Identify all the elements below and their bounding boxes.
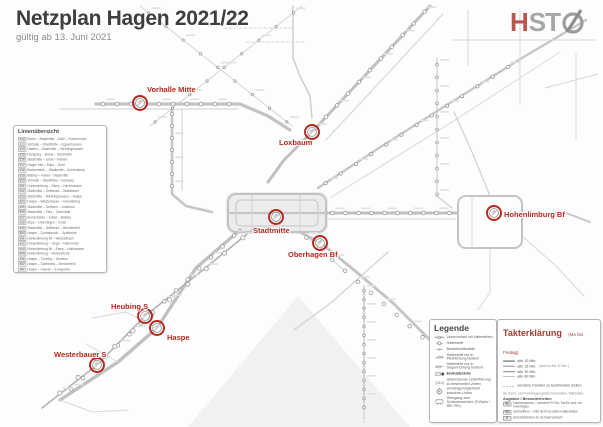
line-number-badge: 544 bbox=[18, 251, 26, 256]
line-number-badge: 84 bbox=[18, 267, 26, 272]
legend-item-label: Haltestelle nur in Gegenrichtung bedient bbox=[447, 362, 494, 370]
line-overview-row: 525Stadtmitte – Delstern – Ambrock bbox=[18, 204, 103, 209]
line-overview-row: 84Haspe – Voerde – Ennepetal bbox=[18, 267, 103, 272]
frequency-bar bbox=[503, 360, 515, 362]
line-overview-box: Linienübersicht 510Boele – Stadtmitte – … bbox=[13, 125, 107, 273]
legend-item: Umsteigemöglichkeit zwischen Linien bbox=[434, 387, 494, 395]
legend-item-label: Übergang zum Schienenverkehr (S-Bahn / R… bbox=[447, 397, 494, 409]
highlight-label: Hohenlimburg Bf bbox=[504, 210, 565, 219]
special-row: SBSchnellbus – hält nicht an allen Halte… bbox=[503, 410, 597, 415]
line-overview-title: Linienübersicht bbox=[18, 129, 103, 135]
frequency-row: alle 30 Min. bbox=[503, 370, 597, 374]
line-overview-row: 530Stadtmitte – Selbecke – Breckerfeld bbox=[18, 225, 103, 230]
line-overview-row: 519Bathey – Kabel – Stadtmitte bbox=[18, 173, 103, 178]
legend-item: Haltestelle nur in Pfeilrichtung bedient bbox=[434, 353, 494, 361]
legend-item-label: Haltestelle nur in Pfeilrichtung bedient bbox=[447, 353, 494, 361]
page-title: Netzplan Hagen 2021/22 bbox=[16, 7, 249, 31]
frequency-label: einzelne Fahrten zu bestimmten Zeiten bbox=[517, 383, 581, 387]
special-text: Nachtexpress – verkehrt Fr/Sa, Sa/So und… bbox=[513, 402, 596, 409]
specials-title: Angaben / Besonderheiten bbox=[503, 397, 597, 401]
highlight-heubing-s[interactable]: Heubing S bbox=[111, 302, 152, 323]
alt-icon: (510) bbox=[434, 380, 445, 385]
line-number-badge: 523 bbox=[18, 194, 26, 199]
line-number-badge: 521 bbox=[18, 184, 26, 189]
request-icon bbox=[434, 347, 445, 352]
line-number-badge: 519 bbox=[18, 173, 26, 178]
line-number-badge: 530 bbox=[18, 225, 26, 230]
line-icon bbox=[434, 335, 445, 340]
frequency-line-icon bbox=[503, 377, 515, 378]
line-number-badge: 527 bbox=[18, 215, 26, 220]
legend-item-label: Linienverlauf mit Haltestellen bbox=[447, 335, 493, 339]
line-number-badge: 525 bbox=[18, 204, 26, 209]
line-overview-row: 515Hengstey – Boele – Stadtmitte bbox=[18, 152, 103, 157]
line-overview-row: 543Hohenlimburg Bf – Elsey – Holthausen bbox=[18, 246, 103, 251]
line-overview-row: 528Eilpe – Oberhagen – Emst bbox=[18, 220, 103, 225]
frequency-row: alle 15 Min.(abends alle 30 Min.) bbox=[503, 364, 597, 368]
special-text: Einsatzfahrten im Schülerverkehr bbox=[513, 416, 562, 421]
line-route-label: Hohenlimburg – Elsey – Henkhausen bbox=[27, 184, 81, 187]
line-overview-row: 522Stadtmitte – Selbecke – Waldbauer bbox=[18, 189, 103, 194]
frequency-line-icon bbox=[503, 366, 515, 367]
special-row: NENachtexpress – verkehrt Fr/Sa, Sa/So u… bbox=[503, 402, 597, 409]
highlight-label: Heubing S bbox=[111, 302, 148, 311]
line-route-label: Hohenlimburg – Hünenpforte bbox=[27, 252, 69, 255]
line-overview-row: 534Haspe – Quambusch – Spielbrink bbox=[18, 231, 103, 236]
line-number-badge: 526 bbox=[18, 210, 26, 215]
line-number-badge: 547 bbox=[18, 262, 26, 267]
special-text: Schnellbus – hält nicht an allen Haltest… bbox=[513, 410, 578, 415]
line-route-label: Eilpe – Oberhagen – Emst bbox=[27, 221, 66, 224]
line-number-badge: 517 bbox=[18, 163, 26, 168]
line-overview-row: 510Boele – Stadtmitte – Dahl – Rummenohl bbox=[18, 137, 103, 142]
line-overview-row: 512Vorhalle – Stadtmitte – Eppenhausen bbox=[18, 142, 103, 147]
line-overview-row: 517Hagen Hbf – Eilpe – Dahl bbox=[18, 163, 103, 168]
highlight-hohenlimburg-bf[interactable]: Hohenlimburg Bf bbox=[487, 206, 565, 220]
line-overview-row: 547Haspe – Spielbrink – Breckerfeld bbox=[18, 262, 103, 267]
special-text: Anruf-Sammel-Taxi – Anmeldung 30 Min. vo… bbox=[513, 422, 591, 423]
line-overview-row: 524Haspe – Westerbauer – Gevelsberg bbox=[18, 199, 103, 204]
highlight-label: Stadtmitte bbox=[253, 226, 290, 235]
line-number-badge: 515 bbox=[18, 152, 26, 157]
line-route-label: Stadtmitte – Selbecke – Breckerfeld bbox=[27, 226, 79, 229]
line-route-label: Hagen Hbf – Eilpe – Dahl bbox=[27, 163, 64, 166]
line-number-badge: 516 bbox=[18, 157, 26, 162]
line-route-label: Hohenlimburg Bf – Elsey – Holthausen bbox=[27, 247, 84, 250]
svg-text:(510): (510) bbox=[435, 380, 445, 385]
line-number-badge: SB72 bbox=[18, 272, 27, 273]
special-badge: SB bbox=[503, 410, 511, 415]
line-route-label: Hohenlimburg – Oege – Nahmertal bbox=[27, 242, 78, 245]
terminus-icon bbox=[434, 372, 445, 377]
line-route-label: Haspe – Spielbrink – Breckerfeld bbox=[27, 263, 75, 266]
hst-logo-st: ST bbox=[529, 9, 560, 35]
legend-list: Linienverlauf mit HaltestellenHaltestell… bbox=[434, 335, 494, 408]
stop-icon bbox=[434, 341, 445, 346]
frequency-line-icon bbox=[503, 371, 515, 372]
legend-item-label: Haltestelle bbox=[447, 342, 464, 346]
line-route-label: Vorhalle – Stadtmitte – Eppenhausen bbox=[27, 142, 81, 145]
line-route-label: Hohenlimburg Bf – Wesselbach bbox=[27, 236, 73, 239]
special-row: ASTAnruf-Sammel-Taxi – Anmeldung 30 Min.… bbox=[503, 422, 597, 423]
frequency-bar bbox=[503, 377, 515, 378]
highlight-haspe[interactable]: Haspe bbox=[150, 321, 190, 342]
highlight-label: Oberhagen Bf bbox=[288, 250, 338, 259]
frequency-row: alle 10 Min. bbox=[503, 359, 597, 363]
highlight-label: Vorhalle Mitte bbox=[147, 85, 196, 94]
legend-item-label: Umsteigemöglichkeit zwischen Linien bbox=[447, 387, 494, 395]
legend-item-label: abweichende Linienführung zu bestimmten … bbox=[447, 378, 494, 386]
line-route-label: Hengstey – Boele – Stadtmitte bbox=[27, 153, 72, 156]
line-number-badge: 546 bbox=[18, 257, 26, 262]
special-badge: NE bbox=[503, 402, 511, 407]
rail-icon bbox=[434, 399, 445, 405]
line-overview-row: 516Stadtmitte – Emst – Halden bbox=[18, 157, 103, 162]
line-overview-row: 521Hohenlimburg – Elsey – Henkhausen bbox=[18, 184, 103, 189]
line-route-label: Stadtmitte – Fley – Garenfeld bbox=[27, 210, 70, 213]
line-overview-list: 510Boele – Stadtmitte – Dahl – Rummenohl… bbox=[18, 137, 103, 274]
legend-item: Haltestelle bbox=[434, 341, 494, 346]
legend-item: (510)abweichende Linienführung zu bestim… bbox=[434, 378, 494, 386]
frequency-label: alle 15 Min. bbox=[517, 364, 536, 368]
highlight-westerbauer-s[interactable]: Westerbauer S bbox=[54, 350, 106, 372]
line-route-label: Boelerheide – Kabel – Bathey bbox=[27, 216, 71, 219]
highlight-oberhagen-bf[interactable]: Oberhagen Bf bbox=[288, 236, 338, 259]
frequency-label: alle 60 Min. bbox=[517, 375, 536, 379]
line-overview-row: 518Boelerheide – Stadtmitte – Kuhlerkamp bbox=[18, 168, 103, 173]
line-number-badge: 542 bbox=[18, 241, 26, 246]
line-number-badge: 534 bbox=[18, 231, 26, 236]
line-overview-row: 542Hohenlimburg – Oege – Nahmertal bbox=[18, 241, 103, 246]
line-number-badge: 512 bbox=[18, 142, 26, 147]
hst-circle-icon bbox=[560, 8, 587, 36]
special-badge: AST bbox=[503, 422, 512, 423]
line-number-badge: 524 bbox=[18, 199, 26, 204]
frequency-label: alle 10 Min. bbox=[517, 359, 536, 363]
frequency-general-note: An Sonn- und Feiertagen gelten besondere… bbox=[503, 392, 597, 396]
frequency-legend-title: Takterklärung bbox=[503, 328, 562, 338]
frequency-note: (abends alle 30 Min.) bbox=[539, 365, 569, 369]
frequency-row: einzelne Fahrten zu bestimmten Zeiten bbox=[503, 380, 597, 391]
line-overview-row: SB72Hagen – Herdecke – Dortmund bbox=[18, 272, 103, 273]
map-header: Netzplan Hagen 2021/22 gültig ab 13. Jun… bbox=[16, 7, 249, 43]
legend-item-label: Bedarfshaltestelle bbox=[447, 348, 476, 352]
line-route-label: Stadtmitte – Selbecke – Waldbauer bbox=[27, 189, 79, 192]
line-overview-row: 541Hohenlimburg Bf – Wesselbach bbox=[18, 236, 103, 241]
special-badge: E bbox=[503, 416, 511, 421]
dir-a-icon bbox=[434, 355, 445, 360]
line-overview-row: 527Boelerheide – Kabel – Bathey bbox=[18, 215, 103, 220]
line-overview-row: 544Hohenlimburg – Hünenpforte bbox=[18, 251, 103, 256]
line-number-badge: 522 bbox=[18, 189, 26, 194]
line-overview-row: 520Vorhalle – Stadtmitte – Eckesey bbox=[18, 178, 103, 183]
line-number-badge: 543 bbox=[18, 246, 26, 251]
line-route-label: Stadtmitte – Emst – Halden bbox=[27, 158, 67, 161]
line-route-label: Bathey – Kabel – Stadtmitte bbox=[27, 174, 68, 177]
dir-b-icon bbox=[434, 364, 445, 369]
line-route-label: Boele – Stadtmitte – Dahl – Rummenohl bbox=[27, 137, 86, 140]
frequency-legend-box: Takterklärung (Mo bis Freitag) alle 10 M… bbox=[497, 319, 601, 423]
frequency-line-icon bbox=[503, 360, 515, 362]
line-overview-row: 546Haspe – Tücking – Geweke bbox=[18, 257, 103, 262]
highlight-label: Loxbaum bbox=[279, 138, 313, 147]
hst-logo-h: H bbox=[510, 9, 529, 35]
line-number-badge: 518 bbox=[18, 168, 26, 173]
line-number-badge: 510 bbox=[18, 137, 26, 142]
line-route-label: Stadtmitte – Wehringhausen – Haspe bbox=[27, 195, 82, 198]
interchange-icon bbox=[434, 388, 445, 395]
frequency-legend-body: alle 10 Min.alle 15 Min.(abends alle 30 … bbox=[503, 359, 597, 423]
line-overview-row: 514Halden – Stadtmitte – Wehringhausen bbox=[18, 147, 103, 152]
legend-item: Endhaltestelle bbox=[434, 372, 494, 377]
line-number-badge: 541 bbox=[18, 236, 26, 241]
line-number-badge: 514 bbox=[18, 147, 26, 152]
special-row: EEinsatzfahrten im Schülerverkehr bbox=[503, 416, 597, 421]
legend-title: Legende bbox=[434, 323, 494, 333]
line-number-badge: 528 bbox=[18, 220, 26, 225]
line-route-label: Vorhalle – Stadtmitte – Eckesey bbox=[27, 179, 74, 182]
legend-box: Legende Linienverlauf mit HaltestellenHa… bbox=[429, 319, 497, 423]
line-overview-row: 523Stadtmitte – Wehringhausen – Haspe bbox=[18, 194, 103, 199]
legend-item-label: Endhaltestelle bbox=[447, 372, 471, 376]
legend-item: Linienverlauf mit Haltestellen bbox=[434, 335, 494, 340]
line-overview-row: 526Stadtmitte – Fley – Garenfeld bbox=[18, 210, 103, 215]
highlight-label: Westerbauer S bbox=[54, 350, 106, 359]
line-route-label: Haspe – Quambusch – Spielbrink bbox=[27, 231, 76, 234]
line-route-label: Haspe – Westerbauer – Gevelsberg bbox=[27, 200, 80, 203]
line-route-label: Stadtmitte – Delstern – Ambrock bbox=[27, 205, 74, 208]
validity-note: gültig ab 13. Juni 2021 bbox=[16, 32, 249, 43]
line-route-label: Halden – Stadtmitte – Wehringhausen bbox=[27, 148, 83, 151]
legend-item: Bedarfshaltestelle bbox=[434, 347, 494, 352]
line-route-label: Boelerheide – Stadtmitte – Kuhlerkamp bbox=[27, 169, 84, 172]
frequency-label: alle 30 Min. bbox=[517, 370, 536, 374]
legend-item: Übergang zum Schienenverkehr (S-Bahn / R… bbox=[434, 397, 494, 409]
legend-item: Haltestelle nur in Gegenrichtung bedient bbox=[434, 362, 494, 370]
hst-logo: H ST bbox=[510, 8, 587, 36]
line-number-badge: 520 bbox=[18, 178, 26, 183]
line-route-label: Haspe – Voerde – Ennepetal bbox=[27, 268, 69, 271]
line-route-label: Haspe – Tücking – Geweke bbox=[27, 257, 67, 260]
highlight-label: Haspe bbox=[167, 333, 190, 342]
frequency-line-icon bbox=[503, 380, 515, 391]
frequency-row: alle 60 Min. bbox=[503, 375, 597, 379]
frequency-bar bbox=[503, 366, 515, 367]
frequency-bar bbox=[503, 371, 515, 372]
